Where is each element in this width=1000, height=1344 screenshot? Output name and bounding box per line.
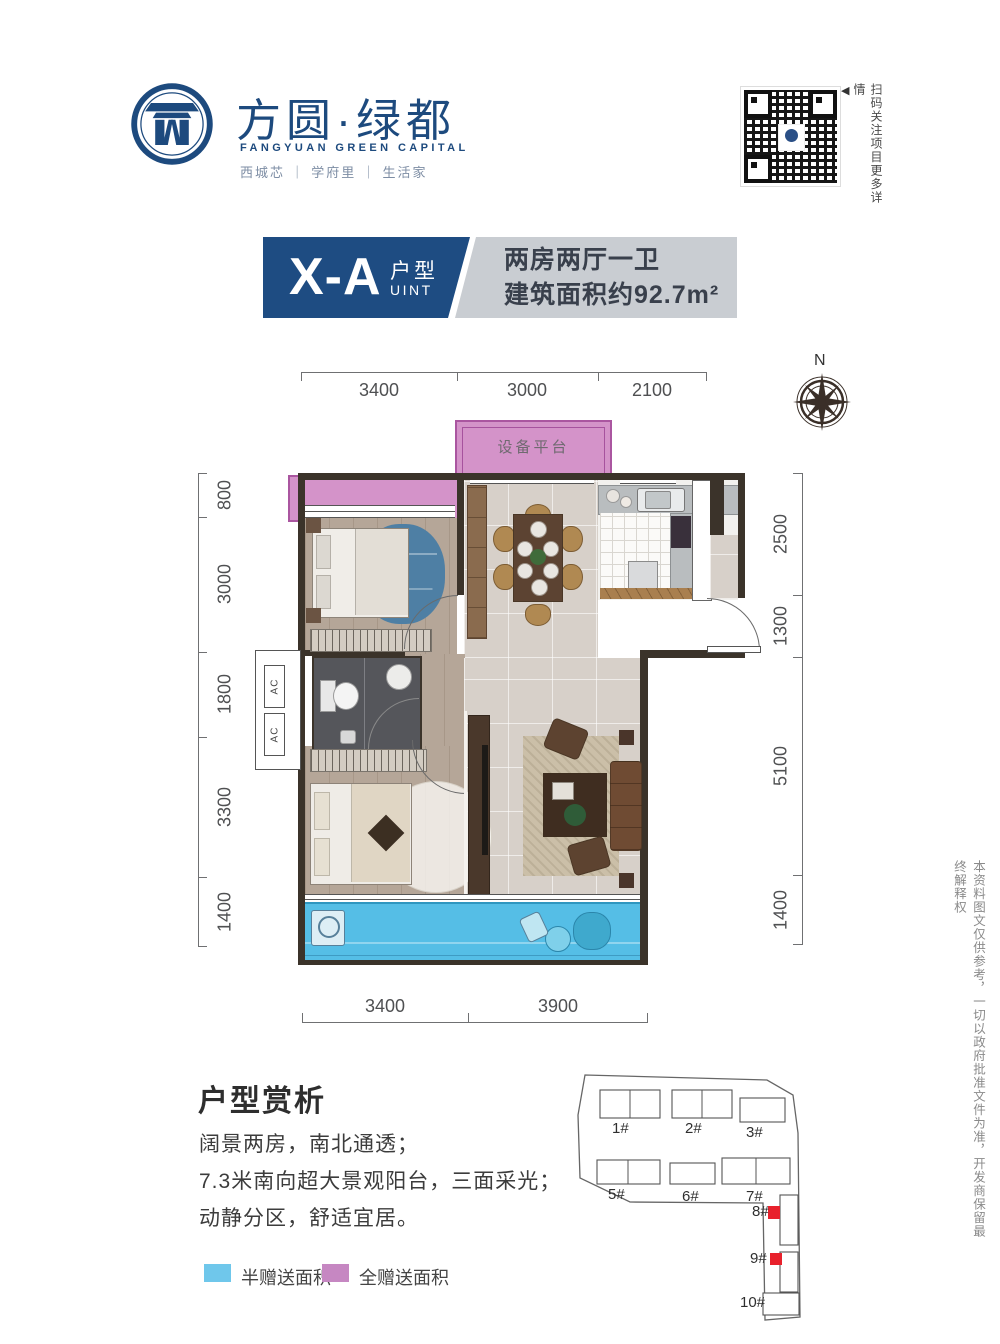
dim-tick xyxy=(793,657,802,658)
bed-pillow xyxy=(314,792,330,830)
compass-icon xyxy=(792,372,852,432)
dim-tick xyxy=(198,877,207,878)
building-label-10: 10# xyxy=(740,1294,765,1311)
dim-right-1: 2500 xyxy=(771,514,792,554)
plate xyxy=(517,563,533,579)
dim-tick xyxy=(793,595,802,596)
ac-unit: AC xyxy=(264,665,285,708)
dining-chair xyxy=(493,564,515,590)
dim-tick xyxy=(468,1013,469,1022)
master-wardrobe xyxy=(310,749,427,772)
building-6 xyxy=(670,1163,715,1184)
dim-line-bottom xyxy=(302,1022,648,1023)
dim-left-4: 3300 xyxy=(215,787,236,827)
building-label-8: 8# xyxy=(752,1203,769,1220)
dim-bottom-2: 3900 xyxy=(538,996,578,1017)
dim-tick xyxy=(457,372,458,381)
analysis-heading: 户型赏析 xyxy=(198,1076,326,1120)
table-tray xyxy=(552,782,574,800)
building-label-9: 9# xyxy=(750,1250,767,1267)
unit-type-cn: 户型 xyxy=(390,255,438,285)
dining-chair xyxy=(561,526,583,552)
kitchen xyxy=(598,480,738,600)
ac-unit-label: AC xyxy=(269,679,280,695)
unit-type-en: UINT xyxy=(390,282,433,298)
dim-left-3: 1800 xyxy=(215,674,236,714)
highlight-unit-8 xyxy=(768,1206,780,1219)
dim-tick xyxy=(198,737,207,738)
dim-tick xyxy=(793,473,802,474)
equipment-platform-label: 设备平台 xyxy=(457,436,610,457)
brand-name-cn: 方圆·绿都 xyxy=(236,84,456,149)
wall-master-living xyxy=(464,711,467,900)
sofa xyxy=(610,761,642,851)
wall-top xyxy=(298,473,745,480)
brochure-page: 方圆·绿都 FANGYUAN GREEN CAPITAL 西城芯 ｜ 学府里 ｜… xyxy=(0,0,1000,1344)
dim-top-1: 3400 xyxy=(359,380,399,401)
entry-door-leaf xyxy=(707,646,761,653)
ac-unit: AC xyxy=(264,713,285,756)
shower-fixture xyxy=(340,730,356,744)
dim-left-1: 800 xyxy=(215,480,236,510)
legend-half-gift-swatch xyxy=(204,1264,231,1282)
balcony-plant xyxy=(573,912,611,950)
dim-tick xyxy=(301,372,302,381)
dim-tick xyxy=(647,1013,648,1022)
dim-right-4: 1400 xyxy=(771,890,792,930)
dining-chair xyxy=(561,564,583,590)
legend-full-gift-label: 全赠送面积 xyxy=(359,1264,449,1290)
qr-finder-bottom-left xyxy=(744,155,772,183)
header: 方圆·绿都 FANGYUAN GREEN CAPITAL 西城芯 ｜ 学府里 ｜… xyxy=(0,0,1000,220)
dining-chair xyxy=(525,604,551,626)
dining-chair xyxy=(493,526,515,552)
dim-tick xyxy=(302,1013,303,1022)
kitchen-fridge xyxy=(628,561,658,590)
qr-caption: 扫码关注项目更多详情 xyxy=(851,83,885,213)
balcony xyxy=(305,902,640,960)
qr-arrow-icon: ◀ xyxy=(841,84,849,97)
toilet-bowl xyxy=(333,682,359,710)
bed-pillow xyxy=(316,535,331,569)
dim-tick xyxy=(793,875,802,876)
unit-layout: 两房两厅一卫 xyxy=(504,243,660,278)
dining-table xyxy=(513,514,563,602)
qr-finder-top-left xyxy=(744,90,772,118)
entry-door-arc xyxy=(707,598,760,651)
building-label-2: 2# xyxy=(685,1120,702,1137)
dim-tick xyxy=(198,517,207,518)
qr-finder-top-right xyxy=(809,90,837,118)
dining-cabinet xyxy=(467,485,487,639)
kitchen-pantry xyxy=(692,480,712,601)
kitchen-threshold xyxy=(600,588,692,599)
analysis-line-1: 阔景两房，南北通透； xyxy=(199,1128,419,1158)
tv xyxy=(482,745,488,855)
unit-area: 建筑面积约92.7m² xyxy=(504,278,719,313)
kitchen-wall-column xyxy=(710,480,724,535)
building-9 xyxy=(780,1252,798,1292)
wall-bedroom1-dining xyxy=(457,473,464,595)
dim-top-3: 2100 xyxy=(632,380,672,401)
entry-floor xyxy=(710,535,738,599)
dim-right-2: 1300 xyxy=(771,606,792,646)
side-table xyxy=(619,730,634,745)
plate xyxy=(530,521,547,538)
washing-machine-drum xyxy=(318,916,340,938)
nightstand xyxy=(306,608,321,623)
bed-pillow xyxy=(316,575,331,609)
building-label-6: 6# xyxy=(682,1188,699,1205)
bed-pillow xyxy=(314,838,330,876)
plate xyxy=(531,579,548,596)
dim-tick xyxy=(198,652,207,653)
ac-platform: AC AC xyxy=(255,650,301,770)
dim-line-right xyxy=(802,473,803,945)
bed-blanket xyxy=(355,529,408,615)
table-plant xyxy=(530,549,546,565)
brand-slogan: 西城芯 ｜ 学府里 ｜ 生活家 xyxy=(240,162,427,181)
disclaimer: 本资料图文仅供参考，一切以政府批准文件为准，开发商保留最终解释权 xyxy=(950,860,988,1245)
unit-spec-banner: 两房两厅一卫 建筑面积约92.7m² xyxy=(449,237,737,318)
nightstand xyxy=(306,518,321,533)
dim-tick xyxy=(198,946,207,947)
qr-code xyxy=(740,86,841,187)
unit-title-banner: X-A 户型 UINT xyxy=(263,237,470,318)
qr-center-logo xyxy=(778,124,805,151)
bathroom-sink xyxy=(386,664,412,690)
dim-left-5: 1400 xyxy=(215,892,236,932)
dim-left-2: 3000 xyxy=(215,564,236,604)
dim-tick xyxy=(598,372,599,381)
kitchen-cooktop xyxy=(671,516,691,548)
brand-name-en: FANGYUAN GREEN CAPITAL xyxy=(240,142,469,154)
bathroom-divider xyxy=(364,658,365,750)
building-label-1: 1# xyxy=(612,1120,629,1137)
dim-bottom-1: 3400 xyxy=(365,996,405,1017)
dim-tick xyxy=(198,473,207,474)
plate xyxy=(543,563,559,579)
kitchen-jar xyxy=(620,496,632,508)
bedroom1-window xyxy=(305,505,455,518)
legend-full-gift-swatch xyxy=(322,1264,349,1282)
dim-tick xyxy=(706,372,707,381)
ac-unit-label: AC xyxy=(269,727,280,743)
side-table xyxy=(619,873,634,888)
dim-top-2: 3000 xyxy=(507,380,547,401)
legend-half-gift-label: 半赠送面积 xyxy=(241,1264,331,1290)
dim-line-left xyxy=(198,473,199,947)
highlight-unit-9 xyxy=(770,1253,782,1265)
kitchen-jar xyxy=(606,489,620,503)
coffee-table xyxy=(543,773,607,837)
building-label-5: 5# xyxy=(608,1186,625,1203)
kitchen-sink-basin xyxy=(645,491,671,509)
building-8 xyxy=(780,1195,798,1245)
master-bed xyxy=(310,783,412,885)
bedroom1-bed xyxy=(312,528,409,618)
unit-code: X-A xyxy=(289,247,382,307)
floor-plan: 设备平台 xyxy=(285,468,760,973)
analysis-line-3: 动静分区，舒适宜居。 xyxy=(199,1202,419,1232)
hall-floor xyxy=(420,654,465,746)
dim-right-3: 5100 xyxy=(771,746,792,786)
balcony-plant xyxy=(545,926,571,952)
analysis-line-2: 7.3米南向超大景观阳台，三面采光； xyxy=(199,1165,561,1195)
compass-north-label: N xyxy=(814,352,826,370)
building-10 xyxy=(763,1293,799,1315)
table-plant xyxy=(564,804,586,826)
building-label-3: 3# xyxy=(746,1124,763,1141)
brand-logo-icon xyxy=(130,82,214,166)
wall-right-upper xyxy=(738,473,745,598)
building-3 xyxy=(740,1098,785,1122)
dim-line-top xyxy=(301,372,707,373)
dim-tick xyxy=(793,944,802,945)
